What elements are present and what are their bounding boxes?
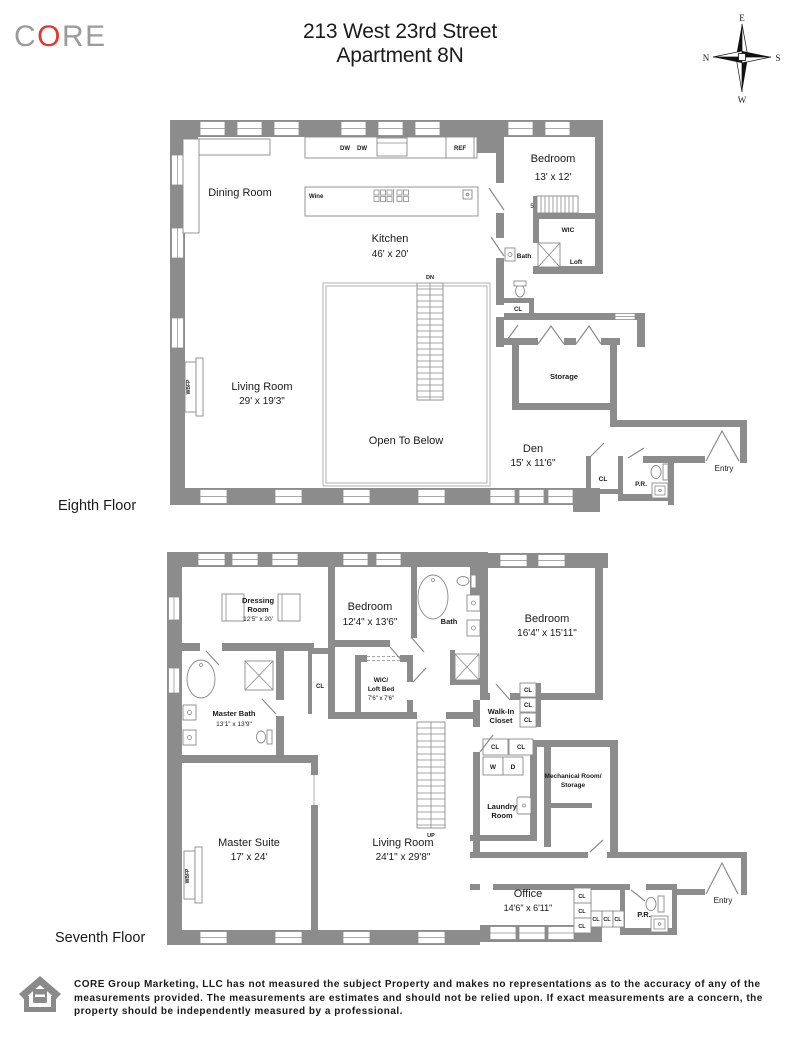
toilet-icon	[516, 285, 525, 297]
master-bath-sink-1	[183, 705, 196, 720]
label-open-to-below: Open To Below	[369, 435, 443, 447]
label-wbfp7: WBFP	[185, 868, 191, 883]
label-wine: Wine	[309, 194, 324, 200]
label-cl-office-2: CL	[578, 909, 586, 915]
room-label-storage8: Storage	[550, 372, 578, 381]
room-label-kitchen: Kitchen	[372, 233, 409, 245]
address-line: 213 West 23rd Street	[0, 20, 800, 44]
label-walkin-1: Walk-In	[488, 707, 515, 716]
bath-toilet-icon	[457, 577, 469, 586]
room-label-master-bath: Master Bath	[213, 709, 256, 718]
room-dims-living7: 24'1" x 29'8"	[376, 852, 431, 863]
house-icon	[18, 975, 62, 1017]
room-label-den: Den	[523, 443, 543, 455]
dressing-closet-2	[278, 594, 300, 621]
label-cl-col-2: CL	[524, 703, 532, 709]
floor-name-seventh: Seventh Floor	[55, 930, 145, 946]
room-label-dressing-2: Room	[247, 605, 269, 614]
room-label-living8: Living Room	[231, 381, 292, 393]
room-label-living7: Living Room	[372, 837, 433, 849]
label-walkin-2: Closet	[490, 716, 513, 725]
room-dims-living8: 29' x 19'3"	[239, 396, 285, 407]
dims-wic7: 7'6" x 7'6"	[368, 696, 394, 702]
loft-stair-icon	[537, 196, 578, 213]
powder-room-sink-icon	[652, 483, 668, 498]
label-cl-den8: CL	[599, 476, 608, 483]
room-label-dressing-1: Dressing	[242, 596, 275, 605]
label-cl-col-3: CL	[524, 718, 532, 724]
label-ref: REF	[454, 146, 466, 152]
room-dims-office: 14'6" x 6'11"	[504, 903, 553, 913]
label-cl-office-3: CL	[578, 924, 586, 930]
label-cl-hall7-3: CL	[614, 917, 622, 923]
compass-rose: E N S W	[700, 8, 790, 110]
room-dims-master-suite: 17' x 24'	[231, 852, 268, 863]
label-cl-office-1: CL	[578, 894, 586, 900]
bath-sink-icon	[505, 248, 515, 261]
dressing-closet-1	[222, 594, 244, 621]
master-bath-tub-icon	[187, 660, 215, 698]
label-bath8: Bath	[517, 253, 531, 260]
label-cl-hall8: CL	[514, 307, 522, 313]
eighth-floor-walls	[170, 120, 747, 512]
label-mech-1: Mechanical Room/	[544, 773, 601, 780]
fireplace-mantel-7	[195, 847, 202, 903]
room-label-dining: Dining Room	[208, 187, 272, 199]
page-title: 213 West 23rd Street Apartment 8N	[0, 20, 800, 68]
room-dims-bedroom-right: 16'4" x 15'11"	[517, 628, 577, 639]
apartment-line: Apartment 8N	[0, 44, 800, 68]
compass-star	[713, 24, 771, 92]
room-label-office: Office	[514, 888, 543, 900]
master-bath-toilet-icon	[257, 731, 266, 743]
label-cl-row-2: CL	[517, 745, 525, 751]
pr7-sink-icon	[651, 916, 668, 932]
floorplan-page: CORE 213 West 23rd Street Apartment 8N E…	[0, 0, 800, 1046]
label-wic7-1: WIC/	[374, 677, 389, 684]
label-laundry-1: Laundry	[487, 802, 517, 811]
label-dw2: DW	[357, 146, 367, 152]
label-washer: W	[490, 764, 497, 771]
label-bath7: Bath	[441, 617, 458, 626]
powder-room-toilet-icon	[651, 466, 661, 479]
disclaimer-text: CORE Group Marketing, LLC has not measur…	[74, 978, 792, 1019]
room-dims-bedroom-mid: 12'4" x 13'6"	[343, 617, 398, 628]
floor-plans: Eighth Floor Dining Room Kitchen 46' x 2…	[0, 100, 800, 960]
room-dims-dressing: 12'5" x 20'	[243, 616, 273, 623]
room-label-bedroom-right: Bedroom	[525, 613, 570, 625]
label-dn: DN	[426, 275, 434, 281]
label-cl-strip: CL	[316, 684, 324, 690]
label-dw1: DW	[340, 146, 350, 152]
label-entry7: Entry	[714, 896, 733, 905]
seventh-floor-labels: Seventh Floor Dressing Room 12'5" x 20' …	[55, 596, 732, 946]
label-pr7: P.R.	[637, 910, 651, 919]
label-cl-hall7-2: CL	[603, 917, 611, 923]
label-cl-hall7-1: CL	[592, 917, 600, 923]
laundry-sink-icon	[517, 797, 531, 814]
room-label-master-suite: Master Suite	[218, 837, 280, 849]
fireplace-mantel	[196, 358, 203, 416]
room-label-bedroom-mid: Bedroom	[348, 601, 393, 613]
range-icon	[377, 138, 407, 156]
bath-sink-2	[467, 620, 480, 636]
label-wic8: WIC	[562, 227, 575, 234]
label-cl-row-1: CL	[491, 745, 499, 751]
room-dims-bedroom8: 13' x 12'	[535, 172, 572, 183]
compass-label-north: N	[703, 53, 710, 63]
dining-counter-side	[183, 139, 199, 233]
master-bath-sink-2	[183, 730, 196, 745]
label-cl-col-1: CL	[524, 688, 532, 694]
compass-label-east: E	[739, 13, 745, 23]
floor-name-eighth: Eighth Floor	[58, 498, 136, 514]
label-pr8: P.R.	[635, 481, 647, 488]
label-wic7-2: Loft Bed	[368, 686, 394, 693]
seventh-floor-plan: Seventh Floor Dressing Room 12'5" x 20' …	[55, 552, 747, 946]
label-dryer: D	[511, 764, 516, 771]
bath-sink-1	[467, 595, 480, 611]
room-dims-kitchen: 46' x 20'	[372, 249, 409, 260]
island-sink-icon	[463, 190, 472, 199]
room-dims-master-bath: 13'1" x 13'9"	[216, 721, 252, 728]
room-dims-den: 15' x 11'6"	[511, 458, 556, 469]
label-entry8: Entry	[715, 464, 734, 473]
label-laundry-2: Room	[491, 811, 513, 820]
room-label-bedroom8: Bedroom	[531, 153, 576, 165]
label-up: UP	[427, 833, 435, 839]
eighth-floor-plan: Eighth Floor Dining Room Kitchen 46' x 2…	[58, 120, 747, 514]
compass-label-south: S	[775, 53, 780, 63]
open-to-below-outline	[323, 283, 490, 486]
label-wbfp8: WBFP	[186, 379, 192, 394]
label-mech-2: Storage	[561, 782, 586, 789]
pr7-toilet-icon	[646, 898, 656, 911]
label-loft8: Loft	[570, 259, 583, 266]
